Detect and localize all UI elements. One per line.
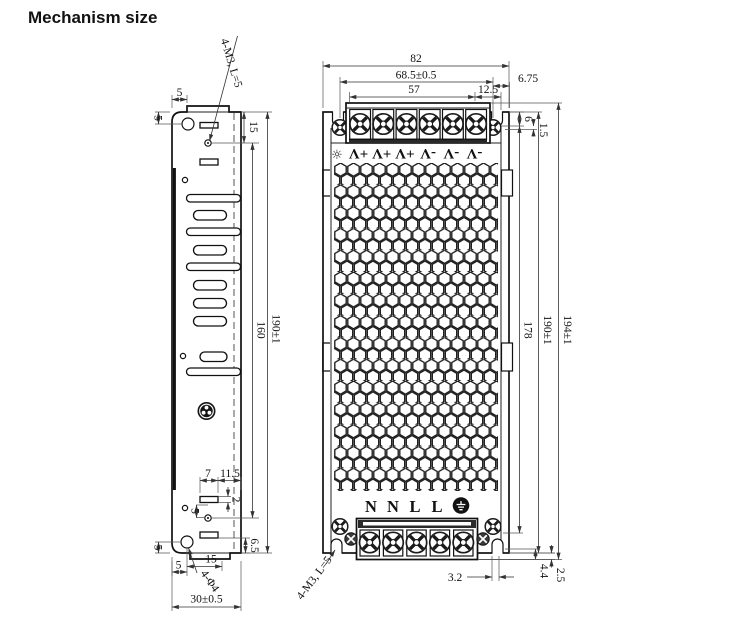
side-slot-right-bottom	[502, 343, 513, 371]
dim-side-body-height: 190±1	[270, 314, 282, 344]
mechanism-size-page: Mechanism size	[0, 0, 750, 623]
terminal-label-plusv: +V	[372, 145, 392, 161]
dim-screw-top-offset: 15	[247, 121, 259, 133]
terminal-screw-icon	[396, 114, 416, 134]
dim-side-body-width: 30±0.5	[190, 594, 222, 606]
mechanism-drawing: 5 5 15 160 190±1 7 11.5 2	[0, 0, 750, 623]
dim-front-body-height: 190±1	[541, 315, 553, 345]
terminal-label-n: N	[387, 497, 399, 516]
terminal-label-plusv: +V	[349, 145, 369, 161]
dim-slot-bottom-offset: 6.5	[248, 538, 260, 553]
dim-bottom-inset: 4.4	[538, 564, 550, 579]
terminal-label-plusv: +V	[395, 145, 415, 161]
voltage-adjust-icon: ☼	[331, 148, 343, 163]
mount-screw-bottom-right-icon	[485, 519, 501, 535]
terminal-screw-icon	[420, 114, 440, 134]
terminal-screw-icon	[373, 114, 393, 134]
side-slot-right-top	[502, 170, 513, 196]
output-terminal-labels: ☼ +V +V +V -V -V -V	[331, 145, 482, 163]
dim-screw-hole-span: 160	[255, 321, 267, 339]
terminal-label-minusv: -V	[420, 145, 436, 161]
dim-hole-bottom-offset: 5	[152, 545, 164, 551]
terminal-label-minusv: -V	[443, 145, 459, 161]
dim-bottom-lip: 2.5	[554, 568, 566, 583]
terminal-screw-icon	[453, 532, 473, 552]
output-terminal-block	[346, 103, 490, 144]
callout-phi4-holes: 4-Φ4	[198, 568, 222, 595]
terminal-label-l: L	[431, 497, 442, 516]
terminal-screw-icon	[360, 532, 380, 552]
dim-hole-tab-offset: 15	[205, 554, 217, 566]
callout-m3-screws-side: 4-M3, L=5	[218, 37, 244, 89]
dim-slot-height: 2	[230, 497, 242, 503]
callout-m3-screws-front: 4-M3, L=5	[295, 554, 335, 602]
dim-tab-offset: 5	[177, 87, 183, 99]
terminal-screw-icon	[406, 532, 426, 552]
terminal-screw-icon	[383, 532, 403, 552]
front-view: ☼ +V +V +V -V -V -V N N L L	[295, 53, 573, 602]
dim-screw-mid-offset: 5	[189, 508, 201, 514]
dim-mount-hole-span: 68.5±0.5	[396, 70, 437, 82]
dim-slot-right-offset: 11.5	[220, 468, 240, 480]
mount-screw-bottom-left-icon	[332, 519, 348, 535]
case-screw-icon	[198, 402, 216, 420]
dim-mount-edge-offset: 6.75	[518, 73, 538, 85]
side-view: 5 5 15 160 190±1 7 11.5 2	[152, 36, 282, 611]
dim-hole-left-offset: 5	[176, 560, 182, 572]
dim-terminal-span: 57	[408, 84, 420, 96]
honeycomb-vent-panel	[334, 163, 498, 491]
dim-front-width: 82	[410, 53, 422, 65]
input-terminal-block	[357, 519, 478, 560]
terminal-screw-icon	[350, 114, 370, 134]
small-screw-bottom-right-icon	[477, 533, 489, 545]
terminal-screw-icon	[466, 114, 486, 134]
terminal-label-minusv: -V	[466, 145, 482, 161]
dim-overall-height: 194±1	[561, 315, 573, 345]
small-screw-bottom-left-icon	[345, 533, 357, 545]
terminal-screw-icon	[443, 114, 463, 134]
dim-top-inset: 6	[522, 116, 534, 122]
side-view-outline	[172, 106, 241, 559]
terminal-label-l: L	[409, 497, 420, 516]
earth-ground-icon	[453, 497, 470, 514]
dim-inner-height: 178	[522, 321, 534, 339]
dim-hole-top-offset: 5	[152, 115, 164, 121]
dim-slot-width: 7	[205, 468, 211, 480]
terminal-label-n: N	[365, 497, 377, 516]
terminal-screw-icon	[430, 532, 450, 552]
dim-notch-width: 3.2	[448, 572, 463, 584]
